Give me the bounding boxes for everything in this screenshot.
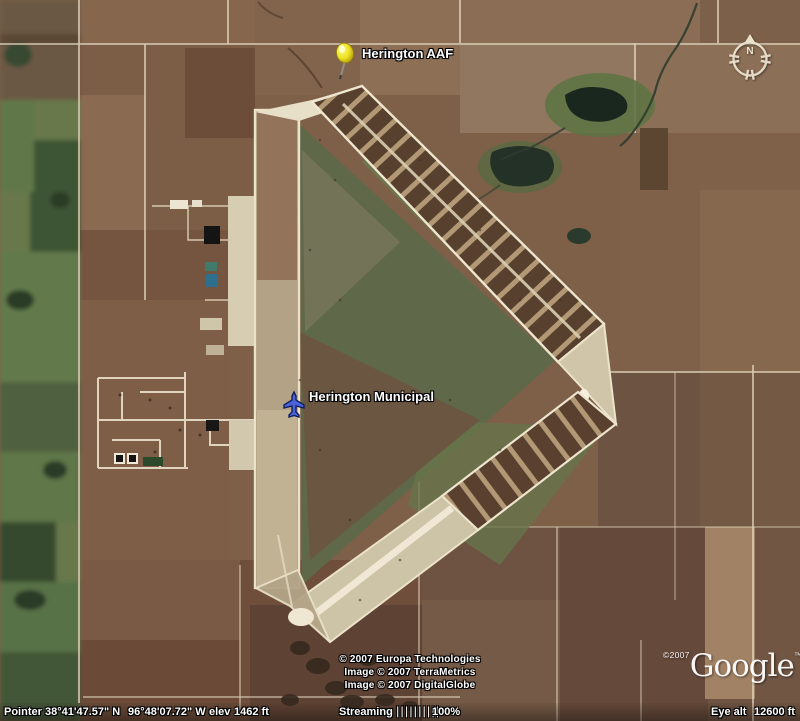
pushpin-icon bbox=[331, 41, 357, 83]
google-logo: ©2007Google™ bbox=[663, 648, 800, 684]
eye-alt-value: 12600 ft bbox=[754, 706, 795, 718]
google-logo-copyright: ©2007 bbox=[663, 650, 690, 660]
streaming-percent: 100% bbox=[432, 706, 460, 718]
eye-alt-label: Eye alt bbox=[711, 706, 746, 718]
attribution-line-1: © 2007 Europa Technologies bbox=[320, 653, 500, 666]
pointer-latitude: 38°41'47.57" N bbox=[45, 706, 120, 718]
placemark-label-herington-aaf: Herington AAF bbox=[362, 46, 453, 61]
placemark-herington-municipal[interactable]: Herington Municipal bbox=[283, 390, 305, 425]
google-earth-view: Herington AAF Herington Municipal N © 20… bbox=[0, 0, 800, 721]
placemark-herington-aaf[interactable]: Herington AAF bbox=[331, 41, 357, 88]
placemark-label-herington-municipal: Herington Municipal bbox=[309, 389, 434, 404]
compass-north-arrow-icon bbox=[745, 34, 756, 43]
compass-north-label: N bbox=[746, 46, 753, 57]
streaming-label: Streaming bbox=[339, 706, 393, 718]
lowres-imagery-strip bbox=[0, 0, 80, 721]
attribution-line-2: Image © 2007 TerraMetrics bbox=[320, 666, 500, 679]
google-logo-wordmark: Google bbox=[690, 648, 794, 684]
attribution-line-3: Image © 2007 DigitalGlobe bbox=[320, 679, 500, 692]
satellite-map[interactable] bbox=[0, 0, 800, 721]
airplane-icon bbox=[283, 390, 305, 420]
compass-rose[interactable]: N bbox=[722, 28, 778, 88]
google-logo-tm: ™ bbox=[794, 651, 800, 660]
elevation-value: 1462 ft bbox=[234, 706, 269, 718]
pointer-label: Pointer bbox=[4, 706, 42, 718]
status-bar: Pointer 38°41'47.57" N 96°48'07.72" W el… bbox=[0, 703, 800, 721]
elevation-label: elev bbox=[209, 706, 230, 718]
map-attribution: © 2007 Europa Technologies Image © 2007 … bbox=[320, 653, 500, 692]
pointer-longitude: 96°48'07.72" W bbox=[128, 706, 206, 718]
